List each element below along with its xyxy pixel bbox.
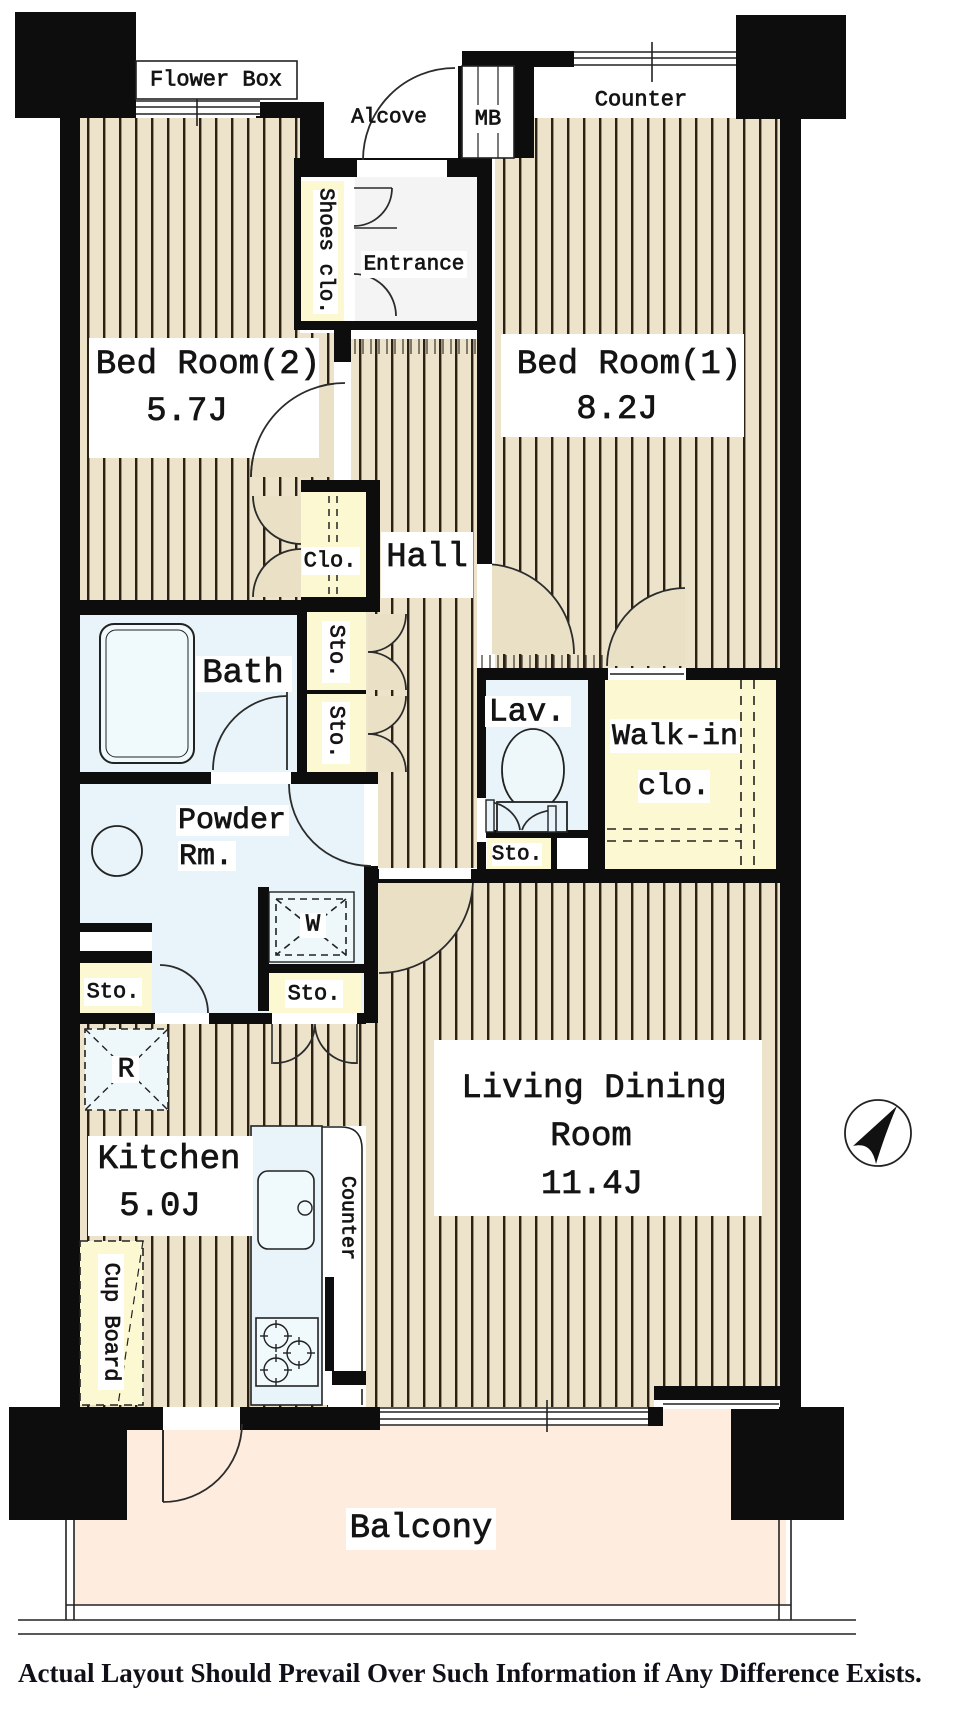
svg-text:Balcony: Balcony <box>350 1510 493 1548</box>
svg-text:Room: Room <box>550 1118 632 1156</box>
svg-text:Hall: Hall <box>386 539 468 577</box>
svg-text:W: W <box>306 912 321 939</box>
svg-text:Walk-in: Walk-in <box>612 720 738 754</box>
svg-text:8.2J: 8.2J <box>576 391 658 429</box>
svg-text:Sto.: Sto. <box>288 982 341 1007</box>
svg-text:Living Dining: Living Dining <box>461 1070 726 1108</box>
svg-text:Cup Board: Cup Board <box>99 1263 124 1382</box>
svg-text:clo.: clo. <box>638 770 710 804</box>
svg-text:Powder: Powder <box>178 804 286 838</box>
svg-text:Sto.: Sto. <box>324 625 349 678</box>
svg-text:Bath: Bath <box>202 655 284 693</box>
svg-text:Sto.: Sto. <box>87 980 140 1005</box>
svg-text:MB: MB <box>475 107 501 132</box>
svg-text:Actual Layout Should Prevail O: Actual Layout Should Prevail Over Such I… <box>18 1658 922 1688</box>
svg-text:R: R <box>118 1055 135 1086</box>
svg-text:5.7J: 5.7J <box>146 393 228 431</box>
svg-text:Entrance: Entrance <box>364 254 465 277</box>
svg-text:Counter: Counter <box>336 1176 359 1260</box>
svg-text:5.0J: 5.0J <box>119 1188 201 1226</box>
svg-text:Sto.: Sto. <box>324 706 349 759</box>
svg-text:Clo.: Clo. <box>304 549 357 574</box>
svg-text:Bed Room(2): Bed Room(2) <box>96 346 320 384</box>
svg-text:Kitchen: Kitchen <box>98 1141 241 1179</box>
svg-text:Shoes clo.: Shoes clo. <box>314 188 337 314</box>
svg-text:Flower Box: Flower Box <box>150 68 282 93</box>
svg-text:Alcove: Alcove <box>351 107 427 130</box>
svg-text:Rm.: Rm. <box>179 840 233 874</box>
svg-text:Lav.: Lav. <box>489 694 566 731</box>
svg-text:Bed Room(1): Bed Room(1) <box>517 346 741 384</box>
svg-text:Sto.: Sto. <box>492 844 542 867</box>
svg-text:11.4J: 11.4J <box>541 1166 643 1204</box>
svg-text:Counter: Counter <box>595 88 687 113</box>
